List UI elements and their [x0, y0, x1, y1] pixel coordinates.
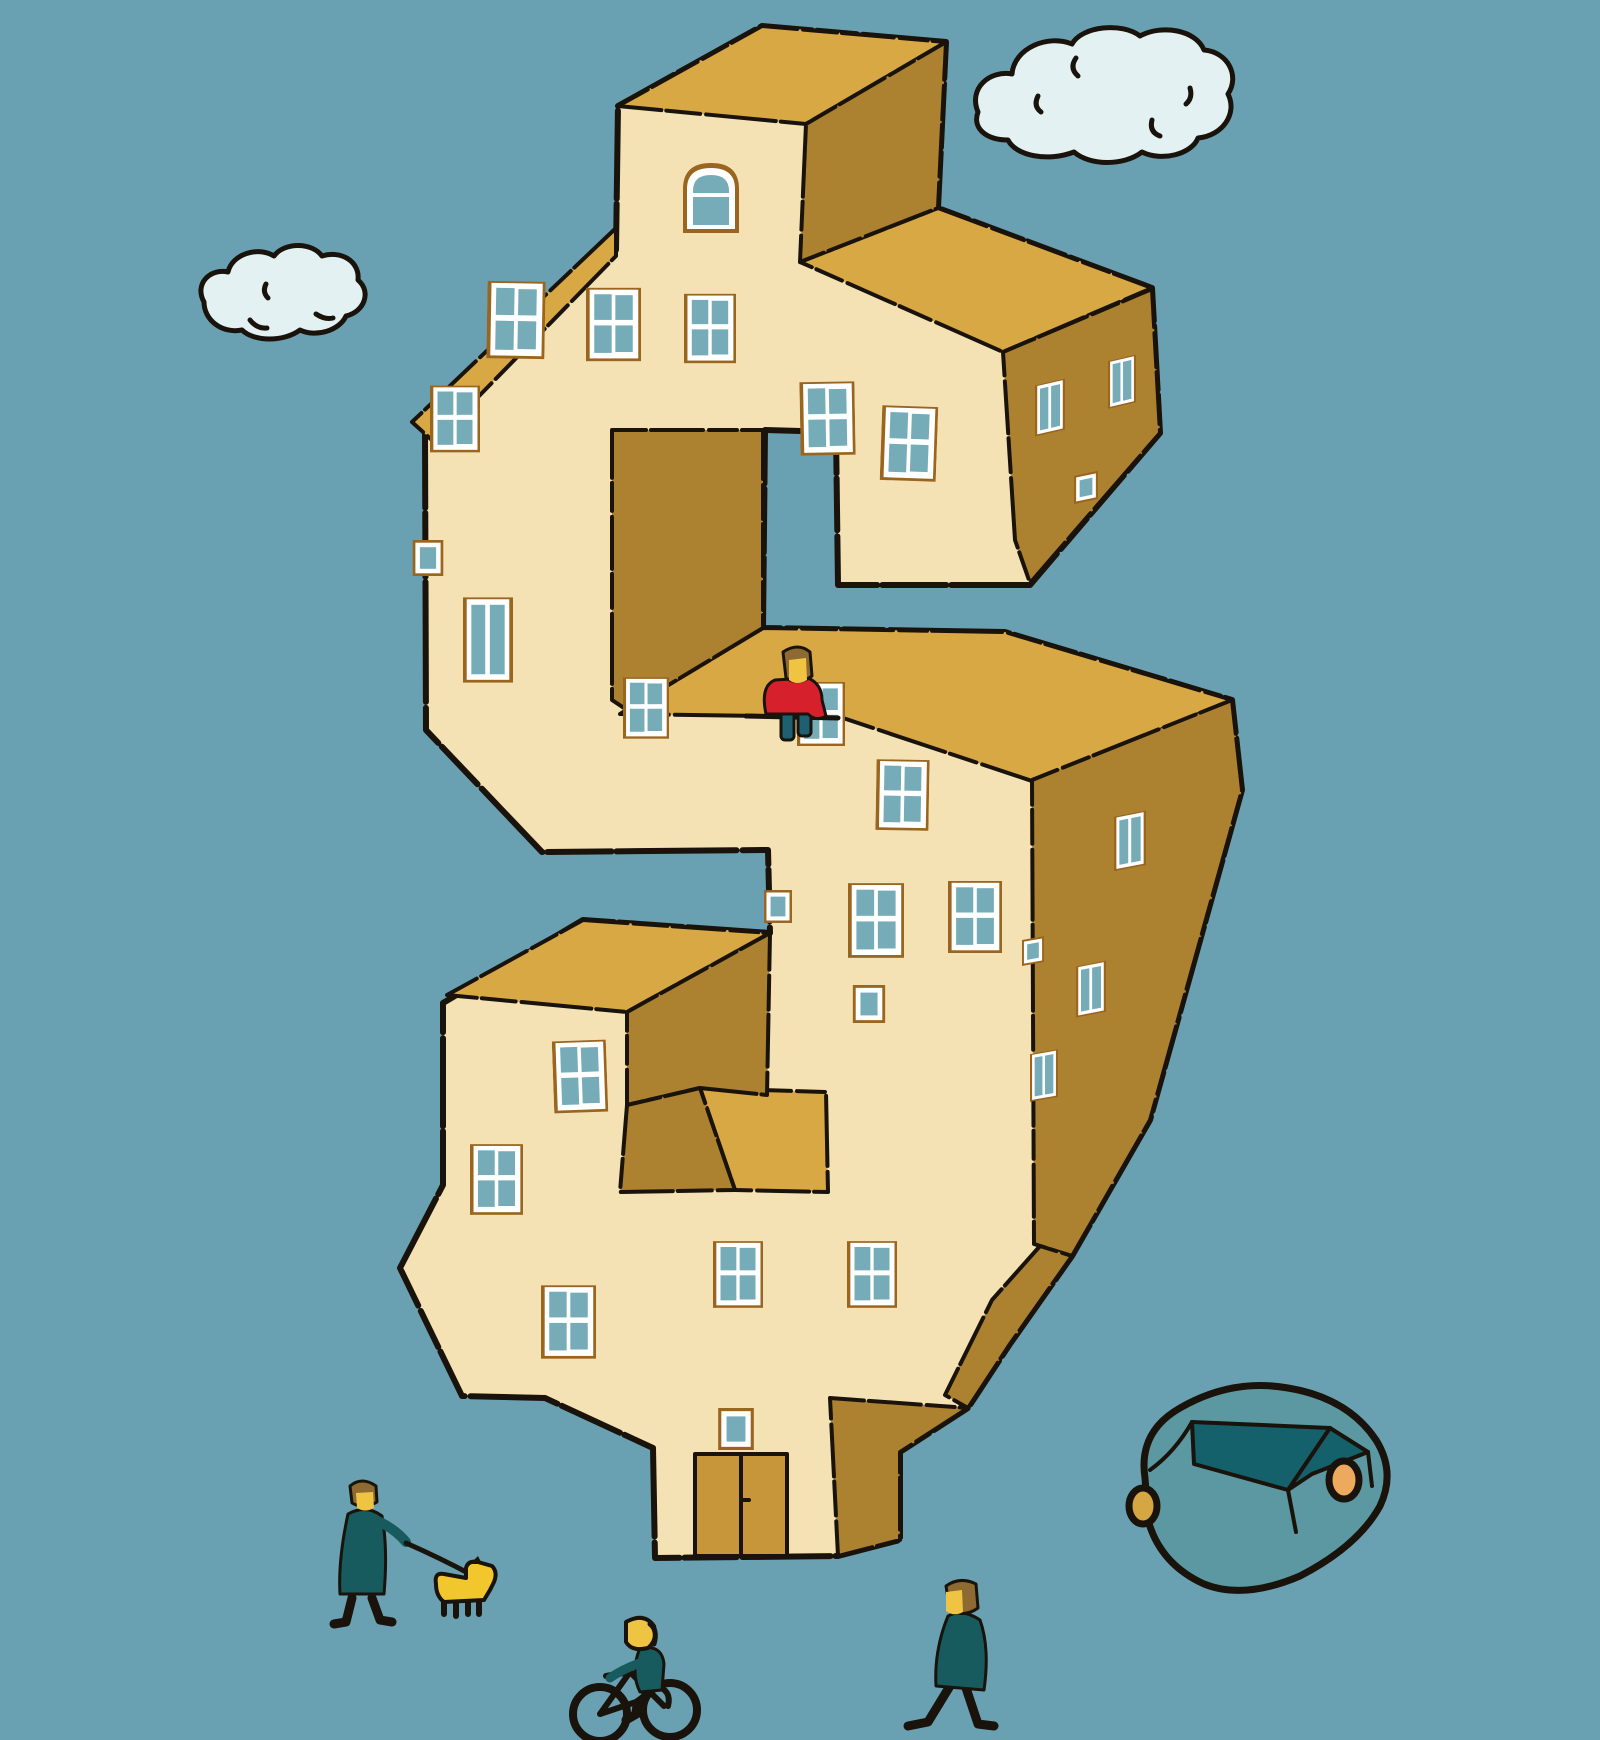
person-face — [789, 658, 807, 683]
window — [552, 1040, 608, 1114]
window-arched — [683, 163, 739, 233]
window-tall — [1108, 355, 1136, 409]
window — [430, 386, 480, 453]
window-small — [764, 890, 792, 923]
window — [875, 759, 929, 831]
window-tall — [1030, 1049, 1058, 1102]
cyclist-torso — [635, 1647, 664, 1692]
illustration-canvas — [0, 0, 1600, 1740]
window-tall — [1114, 811, 1146, 872]
window — [470, 1144, 523, 1215]
window-small — [1074, 471, 1098, 504]
window — [847, 1241, 897, 1308]
window-small — [1022, 936, 1044, 966]
window — [880, 405, 939, 482]
window — [586, 288, 641, 361]
person-torso — [764, 678, 826, 719]
window — [799, 381, 855, 455]
window — [541, 1285, 596, 1358]
car-wheel — [1129, 1488, 1157, 1524]
window-tall — [1076, 961, 1106, 1018]
window-small — [718, 1408, 754, 1450]
window — [848, 883, 904, 958]
car-wheel — [1329, 1461, 1359, 1499]
window — [948, 881, 1002, 953]
window — [684, 294, 736, 363]
window-tall — [463, 597, 513, 682]
window — [623, 677, 669, 738]
window — [486, 281, 545, 359]
pedestrian-face — [946, 1590, 963, 1614]
pedestrian-coat — [936, 1613, 987, 1690]
person-face — [356, 1492, 374, 1511]
window — [713, 1241, 763, 1308]
window-tall — [1035, 379, 1065, 437]
entrance-door — [695, 1454, 787, 1556]
window-small — [413, 540, 444, 576]
window-small — [853, 985, 885, 1023]
